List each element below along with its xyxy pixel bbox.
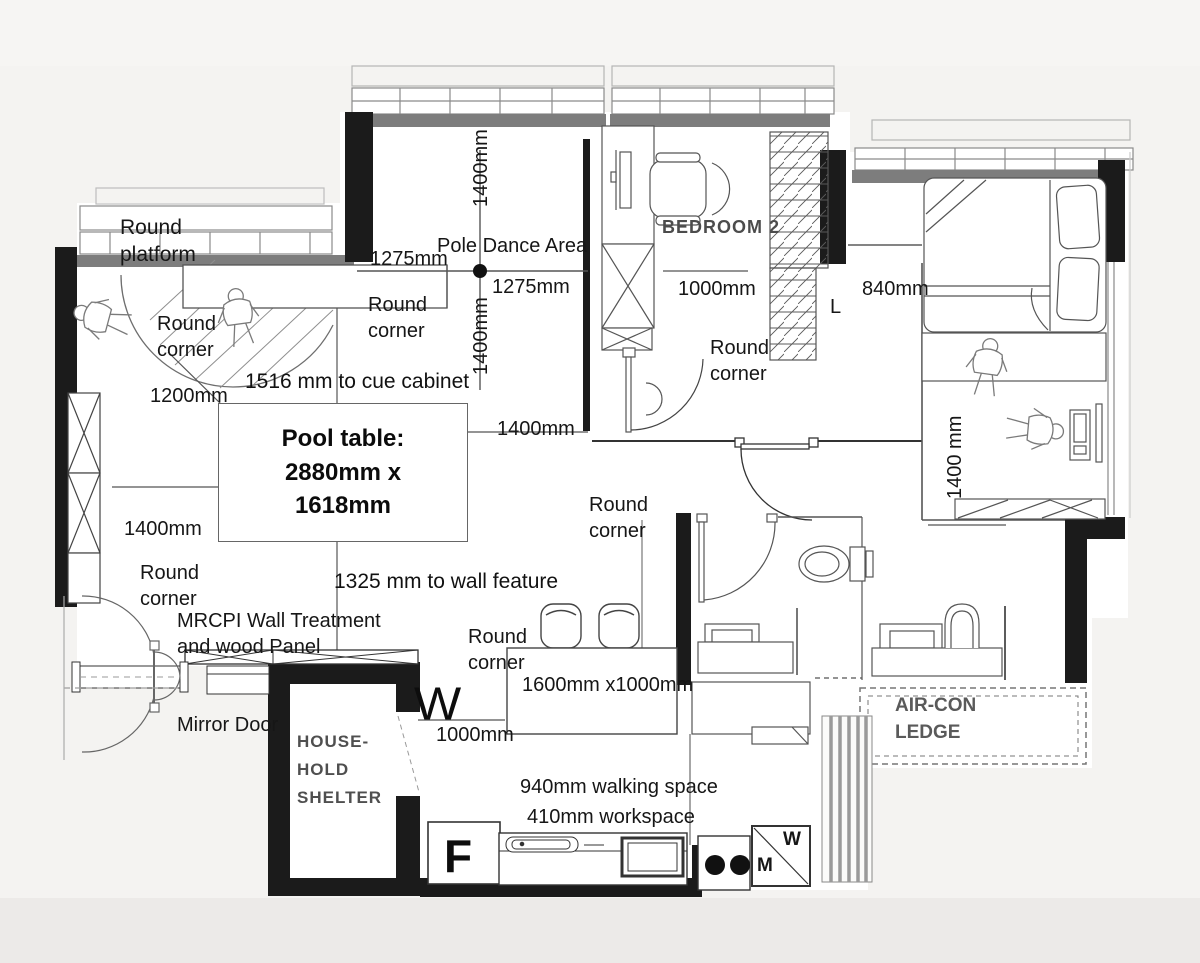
label-walking-space: 940mm walking space [520, 774, 718, 800]
label-round-corner-bedroom2: Round corner [710, 335, 795, 387]
bedroom3-desk [1070, 404, 1102, 462]
label-round-corner-platform: Round corner [157, 311, 242, 363]
dim-1400-pool: 1400mm [497, 416, 575, 442]
pool-table-annotation: Pool table: 2880mm x 1618mm [218, 403, 468, 542]
dim-1000-bedroom2: 1000mm [678, 276, 756, 302]
label-round-corner-door: Round corner [589, 492, 674, 544]
label-pole-dance-area: Pole Dance Area [437, 233, 587, 259]
dim-1400-pole-top: 1400mm [468, 129, 494, 207]
dim-1000-w: 1000mm [436, 722, 514, 748]
label-wall-feature-note: 1325 mm to wall feature [334, 568, 558, 595]
label-household-shelter-1: HOUSE- [297, 731, 369, 753]
dim-840: 840mm [862, 276, 929, 302]
pool-table-line1: Pool table: [282, 422, 405, 456]
label-round-corner-pole: Round corner [368, 292, 453, 344]
label-mrcpi-line2: and wood Panel [177, 634, 320, 660]
dim-1275-right: 1275mm [492, 274, 570, 300]
label-mirror-door: Mirror Door [177, 712, 278, 738]
label-bedroom2: BEDROOM 2 [662, 216, 780, 239]
platform-sill [955, 499, 1105, 519]
label-round-corner-dining: Round corner [468, 624, 553, 676]
marker-fridge-f: F [444, 827, 472, 887]
label-round-platform: Round platform [120, 214, 230, 269]
left-cabinet [68, 393, 100, 603]
toilet-icon [799, 546, 873, 582]
label-workspace: 410mm workspace [527, 804, 695, 830]
label-aircon-1: AIR-CON [895, 694, 976, 719]
pool-table-line3: 1618mm [295, 489, 391, 523]
floor-plan: Round platform 1275mm Pole Dance Area 14… [0, 0, 1200, 963]
label-dining-size: 1600mm x1000mm [522, 672, 693, 698]
label-household-shelter-3: SHELTER [297, 787, 382, 809]
stool-icon [599, 604, 639, 648]
label-cue-cabinet-note: 1516 mm to cue cabinet [245, 368, 469, 395]
dim-1400-bedroom3: 1400 mm [942, 416, 968, 499]
dim-1400-pole-bottom: 1400mm [468, 297, 494, 375]
marker-l: L [830, 294, 841, 320]
label-aircon-2: LEDGE [895, 721, 960, 746]
dim-1200: 1200mm [150, 383, 228, 409]
louvre-window [822, 716, 872, 882]
marker-washer-w: W [783, 828, 801, 853]
label-mrcpi-line1: MRCPI Wall Treatment [177, 608, 381, 634]
label-household-shelter-2: HOLD [297, 759, 349, 781]
hob-icon [698, 836, 750, 890]
dim-1400-left: 1400mm [124, 516, 202, 542]
marker-washer-m: M [757, 854, 773, 879]
pool-table-line2: 2880mm x [285, 456, 401, 490]
label-round-corner-left: Round corner [140, 560, 225, 612]
bed-icon [924, 178, 1106, 332]
